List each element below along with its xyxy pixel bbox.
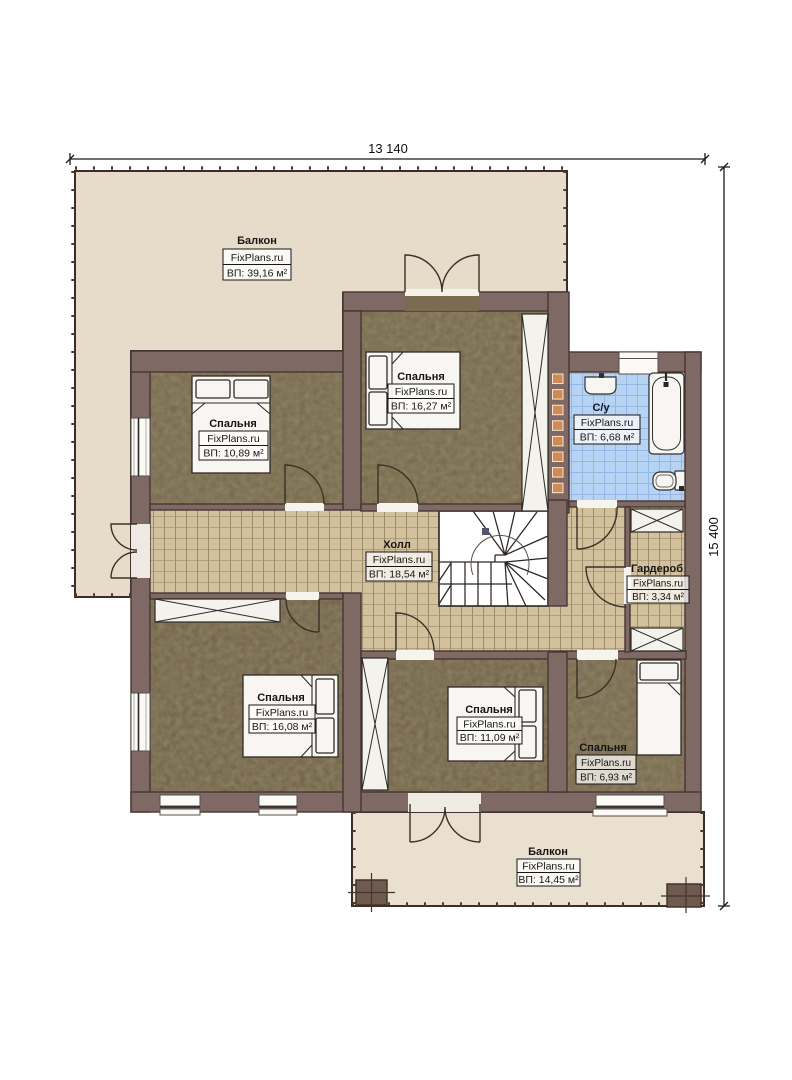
svg-text:Спальня: Спальня	[397, 371, 445, 383]
svg-text:15 400: 15 400	[706, 517, 721, 557]
svg-text:Балкон: Балкон	[237, 235, 277, 247]
svg-text:ВП: 16,27 м²: ВП: 16,27 м²	[391, 401, 452, 413]
svg-text:FixPlans.ru: FixPlans.ru	[395, 386, 448, 398]
svg-text:ВП: 6,68 м²: ВП: 6,68 м²	[580, 432, 635, 444]
svg-text:Спальня: Спальня	[209, 418, 257, 430]
svg-text:ВП: 11,09 м²: ВП: 11,09 м²	[460, 732, 520, 744]
svg-text:ВП: 10,89 м²: ВП: 10,89 м²	[203, 448, 264, 460]
svg-text:Спальня: Спальня	[465, 704, 513, 716]
svg-text:Спальня: Спальня	[257, 692, 305, 704]
svg-text:FixPlans.ru: FixPlans.ru	[463, 719, 516, 731]
svg-text:ВП: 16,08 м²: ВП: 16,08 м²	[252, 721, 313, 733]
svg-text:FixPlans.ru: FixPlans.ru	[633, 579, 683, 590]
svg-text:Холл: Холл	[383, 539, 411, 551]
svg-text:ВП: 14,45 м²: ВП: 14,45 м²	[518, 874, 579, 886]
svg-text:ВП: 6,93 м²: ВП: 6,93 м²	[580, 773, 633, 784]
svg-text:С/у: С/у	[592, 402, 610, 414]
svg-text:FixPlans.ru: FixPlans.ru	[207, 433, 260, 445]
svg-text:ВП: 18,54 м²: ВП: 18,54 м²	[369, 569, 430, 581]
svg-text:FixPlans.ru: FixPlans.ru	[581, 417, 634, 429]
svg-text:ВП: 3,34 м²: ВП: 3,34 м²	[632, 592, 685, 603]
svg-text:FixPlans.ru: FixPlans.ru	[373, 554, 426, 566]
svg-text:FixPlans.ru: FixPlans.ru	[256, 707, 309, 719]
svg-text:ВП: 39,16 м²: ВП: 39,16 м²	[227, 268, 288, 280]
svg-text:Спальня: Спальня	[579, 742, 627, 754]
svg-text:FixPlans.ru: FixPlans.ru	[581, 758, 631, 769]
svg-text:FixPlans.ru: FixPlans.ru	[522, 861, 575, 873]
svg-text:Балкон: Балкон	[528, 846, 568, 858]
svg-text:Гардероб: Гардероб	[631, 563, 683, 575]
svg-text:FixPlans.ru: FixPlans.ru	[231, 252, 284, 264]
svg-text:13 140: 13 140	[368, 141, 408, 156]
